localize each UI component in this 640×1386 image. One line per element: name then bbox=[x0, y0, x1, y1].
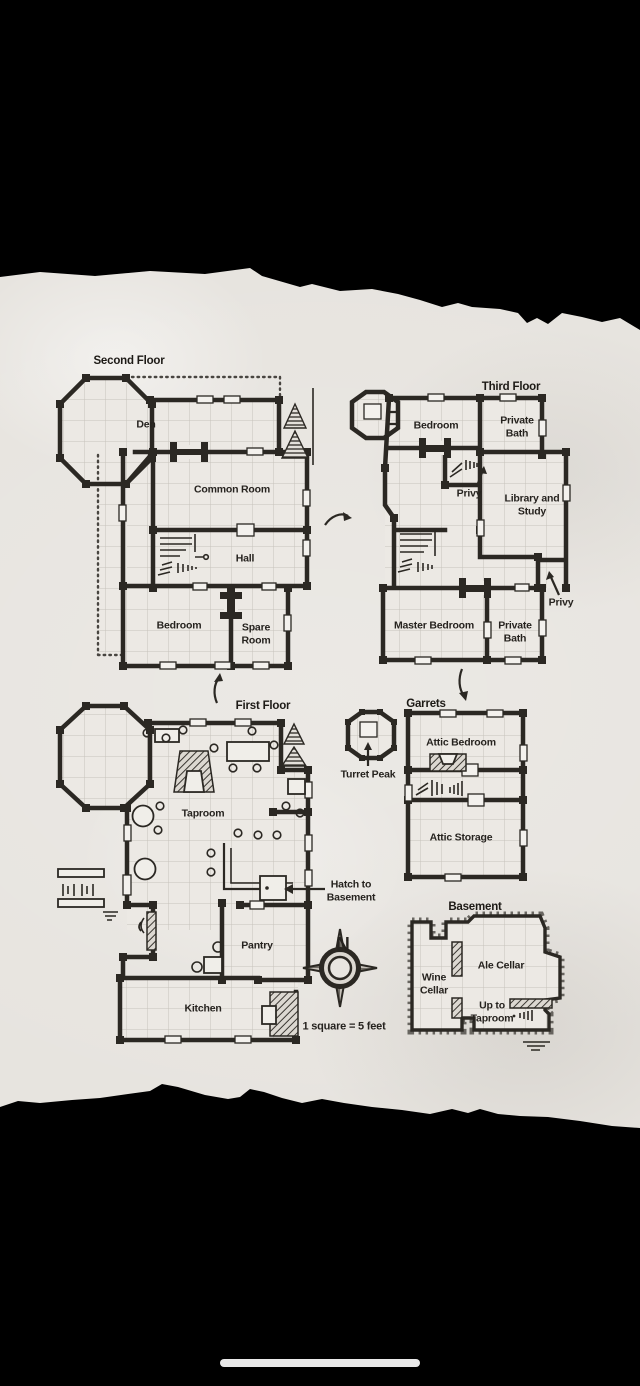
first-floor-plan bbox=[56, 702, 325, 1044]
label-kitchen: Kitchen bbox=[184, 1003, 221, 1016]
label-spare-room: Spare Room bbox=[233, 621, 279, 646]
label-pantry: Pantry bbox=[241, 940, 272, 953]
garrets-plan bbox=[404, 709, 527, 881]
map-page[interactable]: Second Floor Den Common Room Hall Bedroo… bbox=[0, 0, 640, 1386]
label-ale-cellar: Ale Cellar bbox=[478, 960, 524, 973]
turret-peak-plan bbox=[345, 709, 397, 766]
second-floor-title: Second Floor bbox=[93, 355, 164, 369]
home-indicator-bar[interactable] bbox=[220, 1359, 420, 1367]
label-bedroom-3f: Bedroom bbox=[414, 420, 459, 433]
first-floor-title: First Floor bbox=[236, 700, 291, 714]
compass-north-label: N bbox=[336, 935, 350, 958]
label-privy-inner: Privy bbox=[457, 488, 482, 501]
label-library-study: Library and Study bbox=[501, 492, 563, 517]
garrets-title: Garrets bbox=[406, 698, 446, 712]
third-floor-title: Third Floor bbox=[482, 381, 540, 395]
label-attic-storage: Attic Storage bbox=[430, 832, 493, 845]
label-wine-cellar: Wine Cellar bbox=[411, 971, 457, 996]
label-hatch-to-basement: Hatch to Basement bbox=[319, 878, 383, 903]
label-private-bath-bottom: Private Bath bbox=[491, 619, 539, 644]
label-private-bath-top: Private Bath bbox=[493, 414, 541, 439]
scale-note: 1 square = 5 feet bbox=[302, 1020, 385, 1033]
phone-screen: Second Floor Den Common Room Hall Bedroo… bbox=[0, 0, 640, 1386]
map-drawing bbox=[0, 0, 640, 1386]
label-common-room: Common Room bbox=[194, 484, 270, 497]
label-turret-peak: Turret Peak bbox=[341, 769, 396, 782]
label-bedroom-2f: Bedroom bbox=[157, 620, 202, 633]
label-master-bedroom: Master Bedroom bbox=[394, 620, 474, 633]
label-attic-bedroom: Attic Bedroom bbox=[426, 737, 496, 750]
label-up-to-taproom: Up to Taproom bbox=[459, 999, 525, 1024]
label-taproom: Taproom bbox=[182, 808, 225, 821]
label-privy-outer: Privy bbox=[549, 597, 574, 610]
basement-title: Basement bbox=[448, 901, 501, 915]
label-den: Den bbox=[136, 419, 155, 432]
label-hall: Hall bbox=[236, 553, 254, 566]
